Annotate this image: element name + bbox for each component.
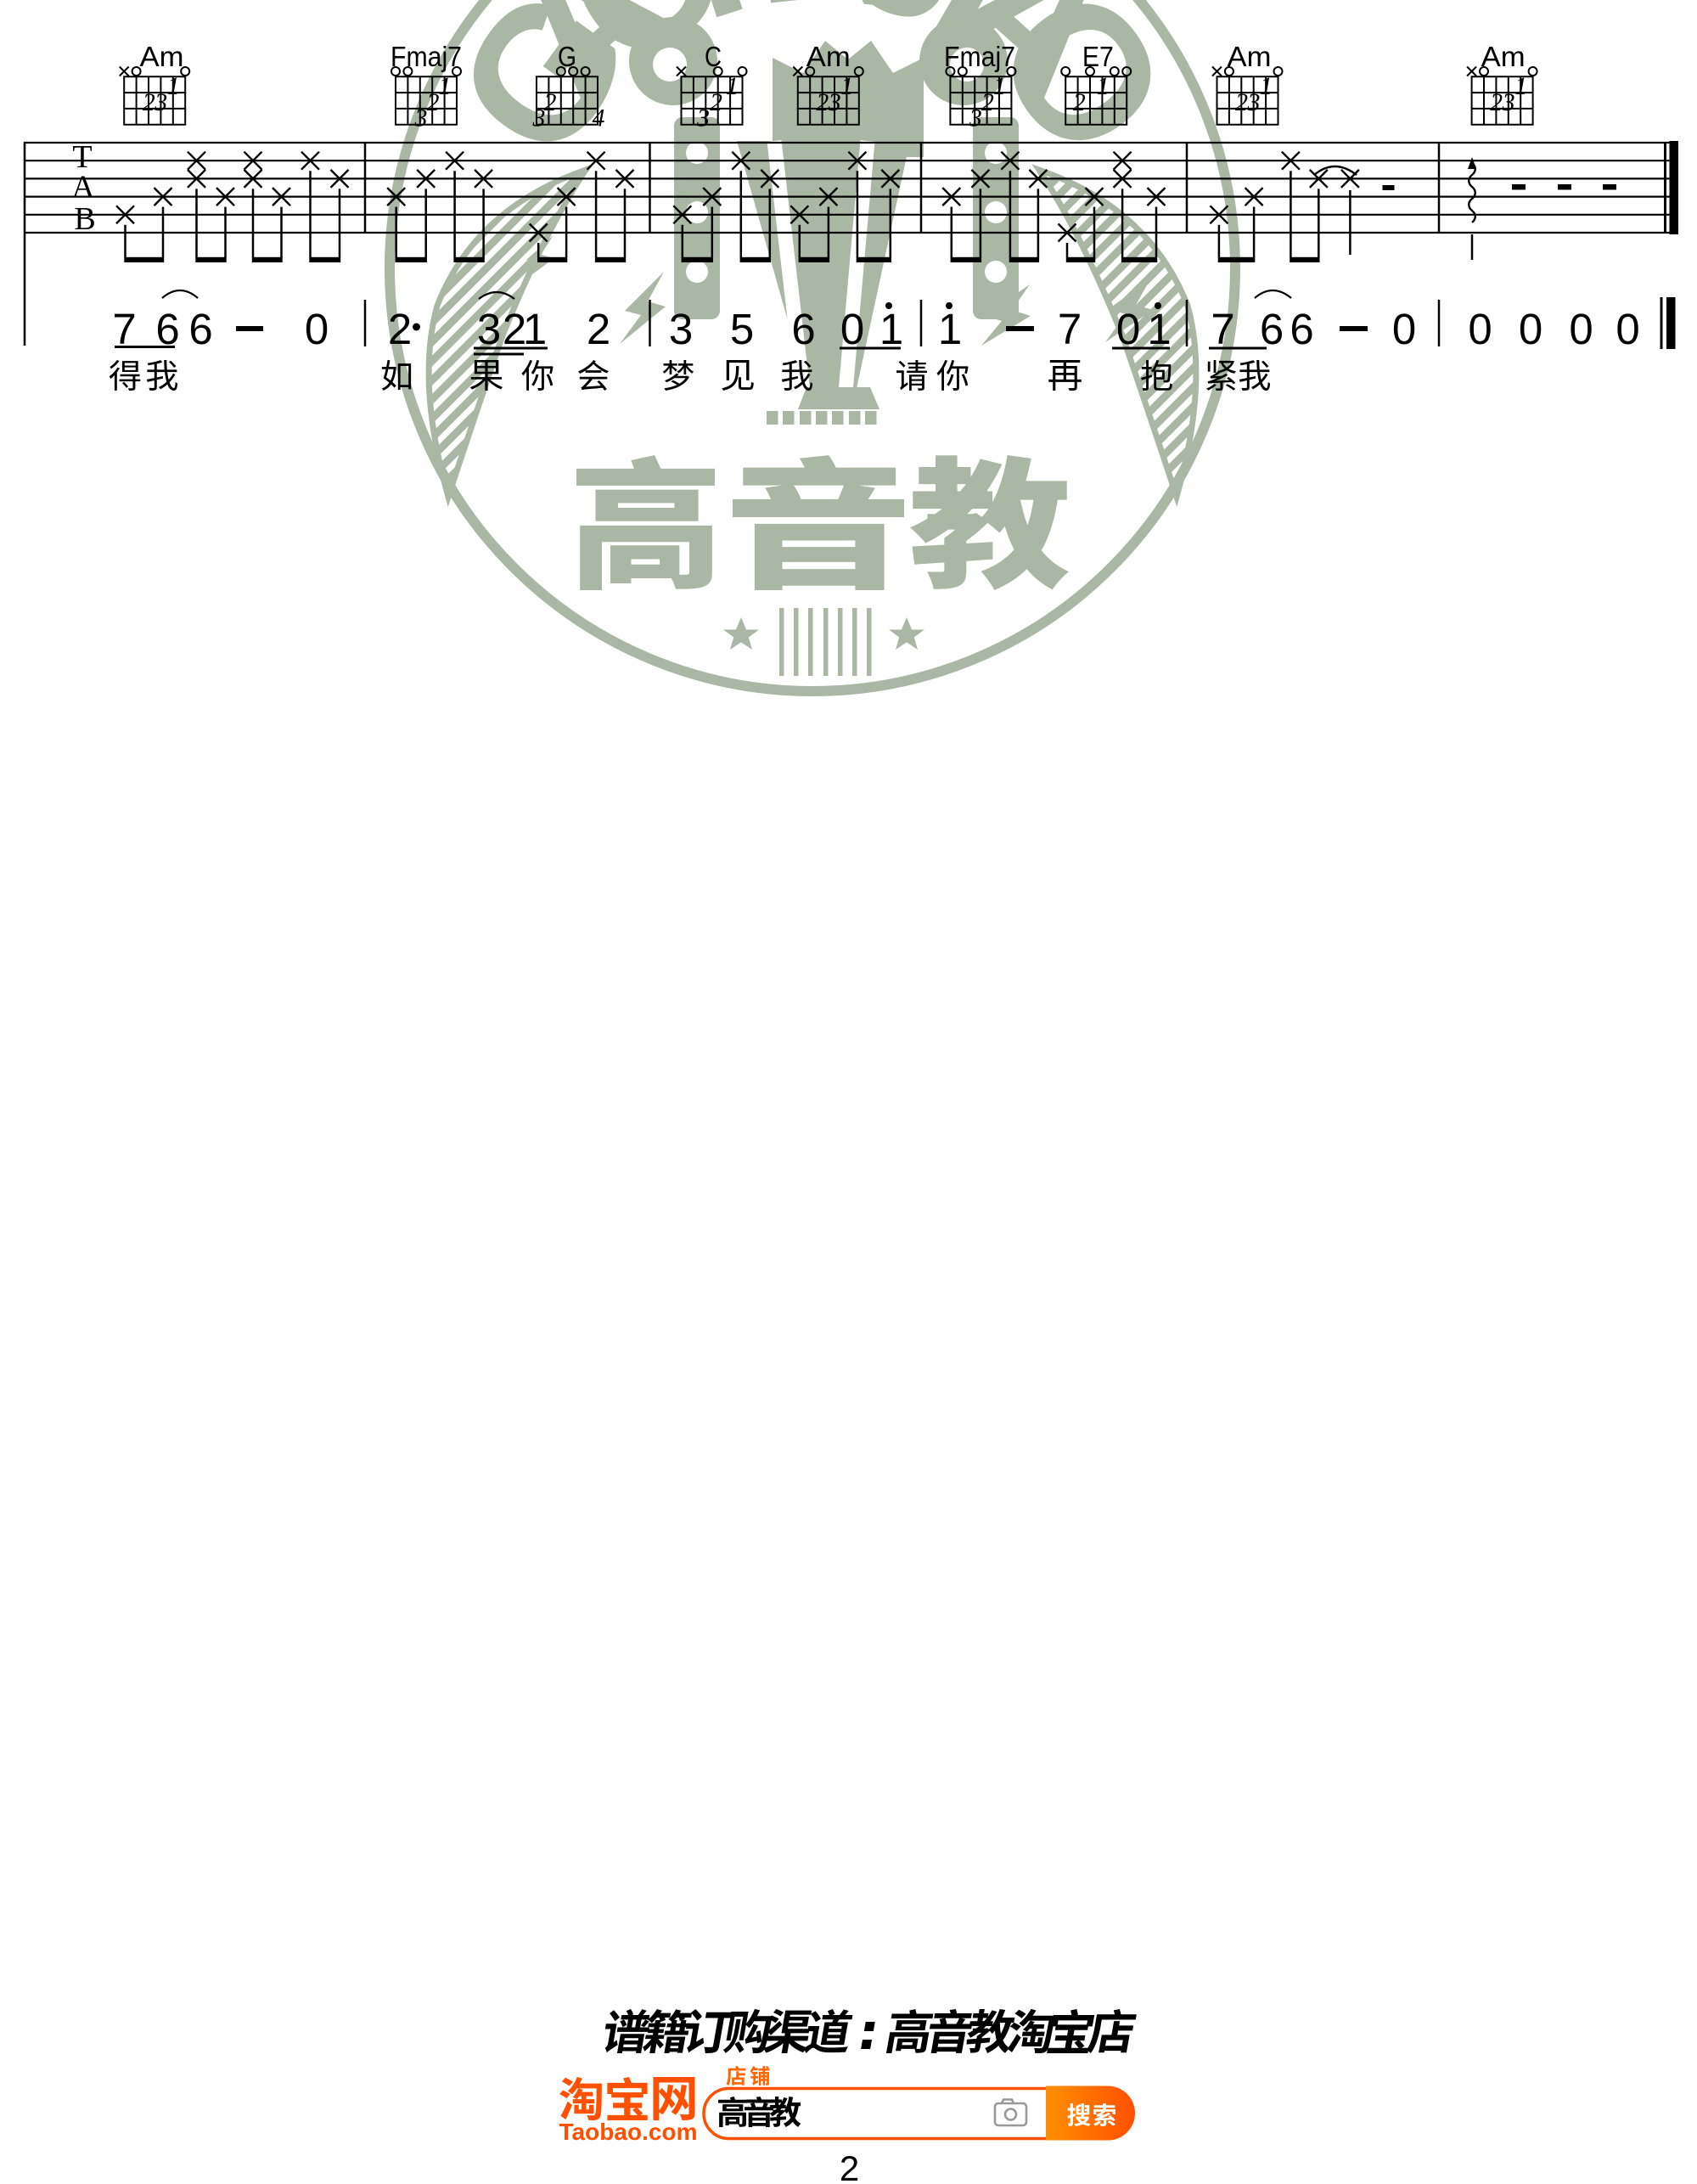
- svg-text:2: 2: [840, 2148, 859, 2184]
- svg-text:2: 2: [1073, 88, 1086, 116]
- svg-text:0: 0: [1569, 305, 1593, 353]
- svg-text:2: 2: [1235, 88, 1248, 116]
- svg-text:Am: Am: [140, 41, 184, 72]
- svg-text:3: 3: [532, 104, 546, 132]
- svg-text:1: 1: [523, 305, 547, 353]
- svg-text:1: 1: [993, 72, 1006, 100]
- svg-text:3: 3: [1502, 88, 1515, 116]
- svg-text:1: 1: [1097, 72, 1110, 100]
- svg-text:3: 3: [154, 88, 167, 116]
- svg-text:1: 1: [726, 72, 739, 100]
- svg-text:E7: E7: [1082, 41, 1114, 72]
- svg-text:1: 1: [840, 72, 853, 100]
- svg-text:0: 0: [1392, 305, 1416, 353]
- svg-text:4: 4: [593, 104, 605, 132]
- svg-text:A: A: [71, 170, 95, 205]
- svg-text:1: 1: [167, 72, 180, 100]
- svg-text:0: 0: [1468, 305, 1492, 353]
- svg-text:1: 1: [1147, 305, 1171, 353]
- svg-text:1: 1: [439, 72, 452, 100]
- svg-text:1: 1: [1260, 72, 1273, 100]
- svg-text:6: 6: [791, 305, 815, 353]
- svg-text:2: 2: [587, 305, 610, 353]
- svg-text:1: 1: [1514, 72, 1527, 100]
- svg-text:0: 0: [840, 305, 864, 353]
- svg-text:1: 1: [938, 305, 962, 353]
- svg-text:Fmaj7: Fmaj7: [944, 41, 1015, 72]
- svg-text:6: 6: [1290, 305, 1313, 353]
- svg-text:Fmaj7: Fmaj7: [391, 41, 462, 72]
- svg-text:3: 3: [969, 104, 982, 132]
- svg-text:Taobao.com: Taobao.com: [559, 2119, 698, 2145]
- svg-text:3: 3: [477, 305, 501, 353]
- svg-text:2: 2: [710, 88, 722, 116]
- svg-text:0: 0: [1116, 305, 1140, 353]
- svg-text:2: 2: [1490, 88, 1503, 116]
- svg-text:Am: Am: [806, 41, 851, 72]
- svg-text:2: 2: [981, 88, 994, 116]
- svg-text:7: 7: [1058, 305, 1082, 353]
- svg-text:3: 3: [696, 104, 710, 132]
- svg-text:3: 3: [669, 305, 693, 353]
- svg-text:G: G: [558, 41, 576, 72]
- svg-text:Am: Am: [1481, 41, 1526, 72]
- svg-text:6: 6: [188, 305, 212, 353]
- svg-text:2: 2: [427, 88, 440, 116]
- svg-text:0: 0: [1616, 305, 1639, 353]
- svg-text:2: 2: [544, 88, 557, 116]
- svg-text:3: 3: [414, 104, 428, 132]
- svg-text:2: 2: [388, 305, 412, 353]
- svg-text:2: 2: [143, 88, 155, 116]
- svg-text:6: 6: [1260, 305, 1284, 353]
- svg-text:C: C: [705, 41, 722, 72]
- svg-text:0: 0: [1519, 305, 1542, 353]
- svg-text:0: 0: [305, 305, 329, 353]
- svg-text:2: 2: [816, 88, 829, 116]
- svg-text:5: 5: [730, 305, 754, 353]
- svg-text:3: 3: [828, 88, 841, 116]
- svg-text:B: B: [74, 201, 95, 237]
- svg-text:3: 3: [1247, 88, 1261, 116]
- svg-text:Am: Am: [1228, 41, 1272, 72]
- svg-text:1: 1: [879, 305, 903, 353]
- svg-text:7: 7: [1211, 305, 1234, 353]
